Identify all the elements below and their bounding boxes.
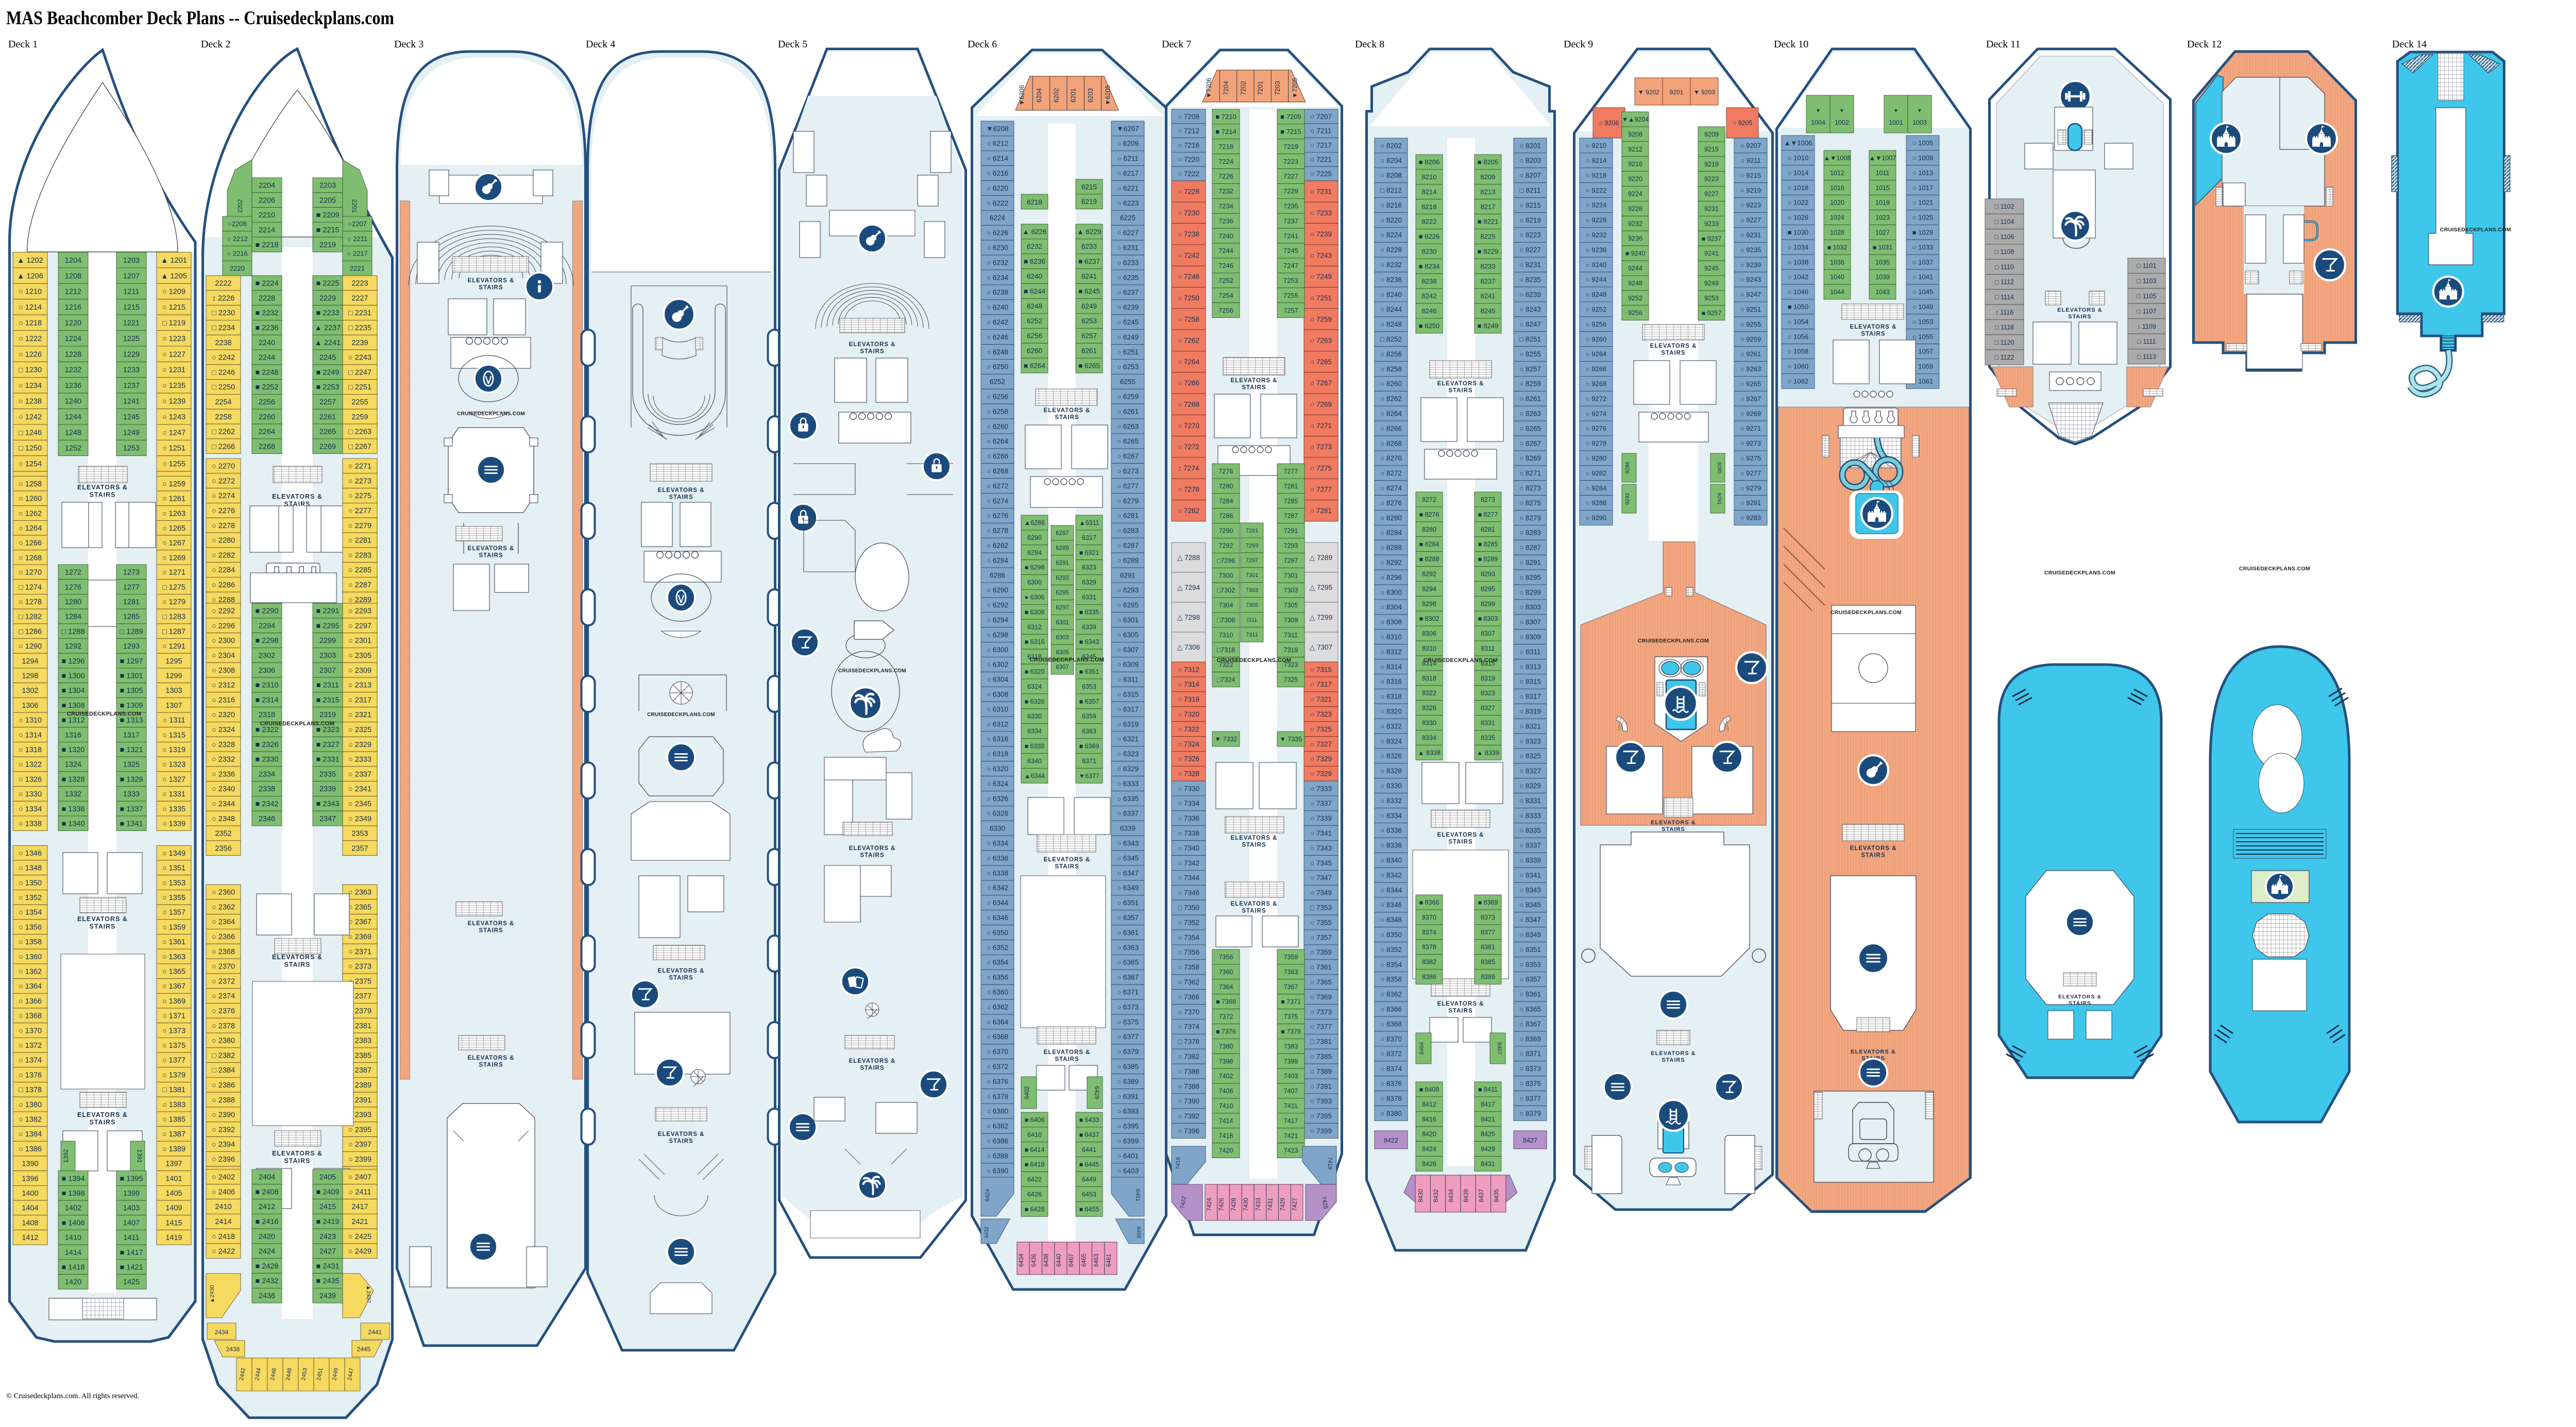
svg-text:■ 7368: ■ 7368 xyxy=(1216,998,1236,1006)
svg-text:○ 7265: ○ 7265 xyxy=(1310,358,1332,366)
svg-text:○ 2308: ○ 2308 xyxy=(212,667,235,675)
svg-text:▼▲9204: ▼▲9204 xyxy=(1622,116,1649,123)
svg-text:○ 6344: ○ 6344 xyxy=(987,899,1008,907)
svg-text:○ 1290: ○ 1290 xyxy=(19,642,42,651)
svg-text:1027: 1027 xyxy=(1875,229,1890,236)
svg-text:○ 8220: ○ 8220 xyxy=(1380,216,1402,224)
svg-text:1298: 1298 xyxy=(22,672,38,680)
svg-text:2223: 2223 xyxy=(351,280,368,288)
svg-text:ELEVATORS &: ELEVATORS & xyxy=(849,845,896,852)
svg-text:○ 9281: ○ 9281 xyxy=(1740,499,1761,507)
svg-text:○ 6349: ○ 6349 xyxy=(1117,884,1139,892)
svg-text:○ 1377: ○ 1377 xyxy=(162,1057,185,1065)
svg-text:7383: 7383 xyxy=(1284,1043,1298,1050)
svg-text:6432: 6432 xyxy=(984,1226,990,1238)
svg-text:○ 1346: ○ 1346 xyxy=(19,850,42,858)
svg-text:○ 2275: ○ 2275 xyxy=(348,492,371,500)
svg-text:7411: 7411 xyxy=(1284,1102,1298,1110)
svg-text:○ 9277: ○ 9277 xyxy=(1740,469,1761,477)
svg-text:■ 7214: ■ 7214 xyxy=(1215,128,1236,135)
svg-text:○ 9228: ○ 9228 xyxy=(1586,216,1606,224)
svg-text:ELEVATORS &: ELEVATORS & xyxy=(77,1111,128,1118)
svg-text:○ 2332: ○ 2332 xyxy=(212,756,235,764)
svg-text:○ 1010: ○ 1010 xyxy=(1788,154,1808,162)
svg-text:○ 8272: ○ 8272 xyxy=(1380,469,1402,477)
svg-text:○ 8368: ○ 8368 xyxy=(1380,1020,1402,1028)
svg-text:○ 1268: ○ 1268 xyxy=(19,554,42,562)
svg-text:6426: 6426 xyxy=(1027,1191,1042,1198)
svg-text:○ 8259: ○ 8259 xyxy=(1519,380,1541,388)
svg-text:7246: 7246 xyxy=(1218,262,1233,269)
svg-text:○ 1235: ○ 1235 xyxy=(162,382,185,390)
svg-text:6429: 6429 xyxy=(1093,1086,1099,1099)
svg-text:○ 2373: ○ 2373 xyxy=(348,963,371,971)
svg-text:8233: 8233 xyxy=(1481,262,1496,270)
svg-text:2427: 2427 xyxy=(319,1248,336,1256)
svg-text:○ 2348: ○ 2348 xyxy=(212,815,235,823)
svg-text:■ 6264: ■ 6264 xyxy=(1024,362,1045,369)
svg-text:7229: 7229 xyxy=(1283,188,1298,195)
svg-text:○ 9278: ○ 9278 xyxy=(1586,439,1606,447)
svg-text:○ 6232: ○ 6232 xyxy=(987,259,1008,266)
svg-text:○ 9247: ○ 9247 xyxy=(1740,291,1761,298)
svg-text:○ 1054: ○ 1054 xyxy=(1788,318,1808,326)
svg-text:7293: 7293 xyxy=(1284,542,1298,549)
svg-text:○ 9206: ○ 9206 xyxy=(1599,120,1619,127)
svg-text:9291: 9291 xyxy=(1716,492,1722,505)
svg-text:6305: 6305 xyxy=(1056,650,1069,656)
svg-text:8420: 8420 xyxy=(1422,1131,1436,1138)
svg-text:6253: 6253 xyxy=(1081,317,1097,325)
svg-text:8437: 8437 xyxy=(1479,1189,1485,1202)
svg-text:6330: 6330 xyxy=(1027,713,1042,720)
svg-text:STAIRS: STAIRS xyxy=(1055,864,1079,870)
svg-text:○ 1022: ○ 1022 xyxy=(1788,199,1808,207)
svg-text:○ 7228: ○ 7228 xyxy=(1178,188,1199,196)
svg-text:○ 2329: ○ 2329 xyxy=(348,741,371,749)
svg-text:△ 7306: △ 7306 xyxy=(1177,643,1200,651)
svg-text:○ 2271: ○ 2271 xyxy=(348,463,371,471)
svg-text:○ 7264: ○ 7264 xyxy=(1178,358,1199,366)
svg-text:○ 8379: ○ 8379 xyxy=(1519,1110,1541,1117)
svg-text:1403: 1403 xyxy=(123,1204,140,1213)
svg-text:□ 8212: □ 8212 xyxy=(1380,186,1402,194)
svg-text:7403: 7403 xyxy=(1284,1073,1298,1080)
svg-text:7319: 7319 xyxy=(1284,647,1298,654)
svg-text:2445: 2445 xyxy=(357,1346,371,1353)
svg-text:○ 6342: ○ 6342 xyxy=(987,884,1008,892)
svg-text:○ 1264: ○ 1264 xyxy=(19,524,42,533)
svg-text:9212: 9212 xyxy=(1628,146,1642,153)
svg-text:○ 8323: ○ 8323 xyxy=(1519,737,1541,745)
svg-text:○ 7251: ○ 7251 xyxy=(1310,294,1332,302)
svg-text:○ 6377: ○ 6377 xyxy=(1117,1033,1139,1041)
svg-text:○ 7318: ○ 7318 xyxy=(1178,695,1199,703)
svg-text:○ 2422: ○ 2422 xyxy=(212,1248,235,1256)
svg-text:○ 2407: ○ 2407 xyxy=(348,1174,371,1182)
svg-text:ELEVATORS &: ELEVATORS & xyxy=(1650,343,1697,349)
svg-text:Deck 2: Deck 2 xyxy=(201,39,230,50)
svg-text:○ 1209: ○ 1209 xyxy=(162,288,185,296)
svg-text:○ 1291: ○ 1291 xyxy=(162,642,185,651)
svg-text:○ 6321: ○ 6321 xyxy=(1117,735,1139,743)
svg-text:1004: 1004 xyxy=(1811,119,1825,126)
svg-text:○ 6335: ○ 6335 xyxy=(1117,795,1139,803)
svg-text:↕ 1116: ↕ 1116 xyxy=(1995,309,2014,316)
svg-text:○ 6333: ○ 6333 xyxy=(1117,780,1139,788)
svg-text:○ 6361: ○ 6361 xyxy=(1117,929,1139,937)
svg-text:ELEVATORS &: ELEVATORS & xyxy=(849,1058,896,1064)
svg-text:MAS Beachcomber Deck Plans --: MAS Beachcomber Deck Plans -- Cruisedeck… xyxy=(6,7,394,28)
svg-text:2228: 2228 xyxy=(259,294,275,302)
svg-text:1425: 1425 xyxy=(123,1278,140,1286)
svg-text:○ 9264: ○ 9264 xyxy=(1586,350,1606,358)
svg-text:○ 6260: ○ 6260 xyxy=(987,422,1008,430)
svg-text:9228: 9228 xyxy=(1628,205,1642,212)
svg-text:○ 7373: ○ 7373 xyxy=(1310,1008,1332,1016)
svg-text:○ 8266: ○ 8266 xyxy=(1380,424,1402,432)
svg-text:▲6344: ▲6344 xyxy=(1024,772,1045,779)
svg-text:○ 1222: ○ 1222 xyxy=(19,335,42,343)
svg-text:6291: 6291 xyxy=(1056,560,1069,566)
svg-text:○ 6220: ○ 6220 xyxy=(987,184,1008,192)
svg-text:9244: 9244 xyxy=(1628,265,1642,272)
svg-text:7311: 7311 xyxy=(1246,632,1258,638)
svg-text:STAIRS: STAIRS xyxy=(1448,1008,1472,1014)
svg-text:2265: 2265 xyxy=(319,428,336,436)
svg-text:○ 7233: ○ 7233 xyxy=(1310,209,1332,217)
svg-text:■ 1297: ■ 1297 xyxy=(120,657,143,666)
svg-text:○ 6318: ○ 6318 xyxy=(987,750,1008,758)
svg-text:6467: 6467 xyxy=(1069,1254,1075,1267)
svg-text:■ 6428: ■ 6428 xyxy=(1025,1205,1045,1213)
svg-text:8242: 8242 xyxy=(1422,292,1437,300)
svg-text:○ 7336: ○ 7336 xyxy=(1178,814,1199,822)
svg-text:1040: 1040 xyxy=(1830,274,1844,281)
svg-text:STAIRS: STAIRS xyxy=(1242,842,1266,848)
svg-text:○ 8257: ○ 8257 xyxy=(1519,365,1541,373)
svg-text:○ 2388: ○ 2388 xyxy=(212,1096,235,1105)
svg-text:1390: 1390 xyxy=(22,1160,38,1168)
svg-text:7364: 7364 xyxy=(1219,983,1233,991)
svg-text:○ 1265: ○ 1265 xyxy=(162,524,185,533)
svg-text:9231: 9231 xyxy=(1704,205,1719,212)
svg-text:○ 7365: ○ 7365 xyxy=(1310,978,1332,986)
svg-text:□7302: □7302 xyxy=(1217,587,1235,594)
svg-text:■ 2331: ■ 2331 xyxy=(316,756,339,764)
svg-text:ELEVATORS &: ELEVATORS & xyxy=(1851,1049,1895,1055)
svg-text:○ 2277: ○ 2277 xyxy=(348,507,371,515)
svg-text:1324: 1324 xyxy=(65,761,81,769)
svg-text:○ 8201: ○ 8201 xyxy=(1519,142,1541,149)
svg-text:■ 8302: ■ 8302 xyxy=(1419,615,1439,622)
svg-text:○ 8342: ○ 8342 xyxy=(1380,871,1402,879)
svg-text:ELEVATORS &: ELEVATORS & xyxy=(468,546,515,552)
svg-text:▼ 7332: ▼ 7332 xyxy=(1215,736,1238,743)
svg-text:○ 1366: ○ 1366 xyxy=(19,997,42,1006)
svg-text:○ 8357: ○ 8357 xyxy=(1519,976,1541,983)
svg-text:■ 6357: ■ 6357 xyxy=(1079,698,1099,705)
svg-text:STAIRS: STAIRS xyxy=(479,1062,503,1068)
svg-text:6324: 6324 xyxy=(1027,683,1042,690)
svg-text:■ 8288: ■ 8288 xyxy=(1419,556,1439,563)
svg-text:○ 9239: ○ 9239 xyxy=(1740,261,1761,268)
svg-text:○ 7267: ○ 7267 xyxy=(1310,379,1332,387)
svg-text:○ 8291: ○ 8291 xyxy=(1519,559,1541,567)
svg-text:8310: 8310 xyxy=(1422,645,1436,652)
svg-text:○ 6258: ○ 6258 xyxy=(987,407,1008,415)
svg-text:■ 7371: ■ 7371 xyxy=(1281,998,1301,1006)
svg-text:○ 7392: ○ 7392 xyxy=(1178,1112,1199,1120)
svg-text:7356: 7356 xyxy=(1219,954,1233,961)
svg-text:○ 6237: ○ 6237 xyxy=(1117,288,1139,296)
svg-text:○ 9232: ○ 9232 xyxy=(1586,231,1606,239)
svg-text:○ 9263: ○ 9263 xyxy=(1740,365,1761,373)
svg-text:■ 2253: ■ 2253 xyxy=(316,383,339,392)
svg-text:○ 1238: ○ 1238 xyxy=(19,398,42,406)
svg-text:○ 2287: ○ 2287 xyxy=(348,581,371,589)
svg-text:○ 8327: ○ 8327 xyxy=(1519,767,1541,775)
svg-text:7293: 7293 xyxy=(1246,542,1258,549)
svg-text:□ 1114: □ 1114 xyxy=(1995,294,2014,301)
svg-text:9219: 9219 xyxy=(1704,161,1719,168)
svg-text:○ 6346: ○ 6346 xyxy=(987,914,1008,922)
svg-text:6233: 6233 xyxy=(1081,243,1097,250)
svg-text:○ 8248: ○ 8248 xyxy=(1380,320,1402,328)
svg-text:○ 1326: ○ 1326 xyxy=(19,775,42,784)
svg-text:○ 6249: ○ 6249 xyxy=(1117,333,1139,341)
svg-text:○ 7388: ○ 7388 xyxy=(1178,1082,1199,1090)
svg-text:○ 6345: ○ 6345 xyxy=(1117,854,1139,862)
svg-text:9224: 9224 xyxy=(1628,190,1642,197)
svg-text:○ 8377: ○ 8377 xyxy=(1519,1095,1541,1102)
svg-text:○ 2386: ○ 2386 xyxy=(212,1081,235,1090)
svg-text:6252: 6252 xyxy=(1027,317,1042,325)
svg-text:1228: 1228 xyxy=(65,350,81,359)
svg-text:8280: 8280 xyxy=(1422,526,1436,533)
svg-text:2244: 2244 xyxy=(259,354,275,362)
svg-text:○ 9227: ○ 9227 xyxy=(1740,216,1761,224)
svg-text:○ 9282: ○ 9282 xyxy=(1586,469,1606,477)
svg-text:© Cruisedeckplans.com. All rig: © Cruisedeckplans.com. All rights reserv… xyxy=(6,1392,139,1400)
svg-text:○ 2349: ○ 2349 xyxy=(348,815,371,823)
svg-text:○ 1374: ○ 1374 xyxy=(19,1057,42,1065)
svg-text:○ 6264: ○ 6264 xyxy=(987,437,1008,445)
svg-text:○ 6317: ○ 6317 xyxy=(1117,705,1139,713)
svg-text:■ 6414: ■ 6414 xyxy=(1025,1146,1045,1153)
svg-text:8238: 8238 xyxy=(1422,277,1437,285)
svg-text:STAIRS: STAIRS xyxy=(2069,1000,2091,1007)
svg-text:○ 8370: ○ 8370 xyxy=(1380,1035,1402,1043)
svg-text:○ 6385: ○ 6385 xyxy=(1117,1063,1139,1071)
svg-text:STAIRS: STAIRS xyxy=(1662,826,1685,833)
svg-text:○ 8256: ○ 8256 xyxy=(1380,350,1402,358)
svg-text:○ 8202: ○ 8202 xyxy=(1380,142,1402,149)
svg-text:○ 2411: ○ 2411 xyxy=(349,1188,371,1196)
svg-text:○ 2279: ○ 2279 xyxy=(348,522,371,530)
svg-text:8386: 8386 xyxy=(1422,973,1436,980)
svg-text:7219: 7219 xyxy=(1283,143,1298,150)
svg-text:● 6306: ● 6306 xyxy=(1025,593,1045,601)
svg-text:□ 2382: □ 2382 xyxy=(212,1051,235,1060)
svg-text:○ 6301: ○ 6301 xyxy=(1117,616,1139,624)
svg-text:1249: 1249 xyxy=(123,429,140,437)
svg-text:○ 9280: ○ 9280 xyxy=(1586,454,1606,462)
svg-text:○ 8262: ○ 8262 xyxy=(1380,395,1402,403)
svg-text:■ 2290: ■ 2290 xyxy=(255,607,278,616)
svg-text:○ 1365: ○ 1365 xyxy=(162,967,185,976)
svg-text:■ 2298: ■ 2298 xyxy=(255,637,278,645)
svg-text:6317: 6317 xyxy=(1082,534,1096,541)
svg-text:○ 6227: ○ 6227 xyxy=(1117,229,1139,237)
svg-text:○ 2380: ○ 2380 xyxy=(212,1037,235,1045)
svg-text:○ 7391: ○ 7391 xyxy=(1310,1082,1332,1090)
svg-text:□ 1106: □ 1106 xyxy=(1995,233,2014,241)
svg-text:○ 7243: ○ 7243 xyxy=(1310,251,1332,259)
svg-text:7256: 7256 xyxy=(1218,307,1233,314)
svg-text:1241: 1241 xyxy=(123,398,140,406)
svg-text:■ 2236: ■ 2236 xyxy=(255,324,278,332)
svg-text:○ 7340: ○ 7340 xyxy=(1178,844,1199,852)
svg-text:△ 7295: △ 7295 xyxy=(1310,584,1332,591)
svg-text:2410: 2410 xyxy=(215,1203,231,1211)
svg-text:ELEVATORS &: ELEVATORS & xyxy=(2058,994,2102,1000)
svg-text:■ 8284: ■ 8284 xyxy=(1419,541,1439,548)
svg-text:7416: 7416 xyxy=(1175,1157,1181,1169)
svg-text:○ 7217: ○ 7217 xyxy=(1310,141,1332,149)
svg-text:▲ 1205: ▲ 1205 xyxy=(161,272,187,280)
svg-text:■ 6320: ■ 6320 xyxy=(1025,668,1045,675)
svg-text:○ 6250: ○ 6250 xyxy=(987,363,1008,371)
svg-text:■ 6437: ■ 6437 xyxy=(1079,1131,1099,1139)
svg-text:○ 8315: ○ 8315 xyxy=(1519,678,1541,686)
svg-text:□ 1288: □ 1288 xyxy=(61,627,84,636)
svg-text:8237: 8237 xyxy=(1481,277,1496,285)
svg-text:○ 8258: ○ 8258 xyxy=(1380,365,1402,373)
svg-text:9208: 9208 xyxy=(1628,131,1642,138)
svg-text:2303: 2303 xyxy=(319,652,336,660)
svg-text:2318: 2318 xyxy=(259,711,275,719)
svg-text:▼: ▼ xyxy=(1839,108,1844,114)
svg-text:○ 9214: ○ 9214 xyxy=(1586,157,1606,164)
svg-text:○ 8276: ○ 8276 xyxy=(1380,499,1402,507)
svg-text:6297: 6297 xyxy=(1056,605,1069,611)
svg-text:■ 1312: ■ 1312 xyxy=(61,717,84,725)
svg-text:↕ 1109: ↕ 1109 xyxy=(2137,323,2156,330)
svg-text:STAIRS: STAIRS xyxy=(2068,314,2092,320)
svg-text:6201: 6201 xyxy=(1070,88,1077,103)
svg-text:○ 2242: ○ 2242 xyxy=(212,354,235,362)
svg-text:8378: 8378 xyxy=(1422,944,1436,951)
svg-text:○ 9269: ○ 9269 xyxy=(1740,410,1761,417)
svg-text:○ 6364: ○ 6364 xyxy=(987,1018,1008,1026)
svg-text:○ 7322: ○ 7322 xyxy=(1178,725,1199,733)
svg-text:ELEVATORS &: ELEVATORS & xyxy=(658,968,705,974)
svg-text:8430: 8430 xyxy=(1418,1189,1425,1202)
svg-text:○ 2300: ○ 2300 xyxy=(212,637,235,645)
svg-text:○ 2289: ○ 2289 xyxy=(348,596,371,604)
svg-text:□ 1108: □ 1108 xyxy=(1995,248,2014,256)
svg-text:7398: 7398 xyxy=(1219,1058,1233,1065)
svg-text:ELEVATORS &: ELEVATORS & xyxy=(1231,901,1278,907)
svg-text:STAIRS: STAIRS xyxy=(284,1158,311,1165)
svg-text:7245: 7245 xyxy=(1283,247,1298,254)
svg-text:6219: 6219 xyxy=(1081,198,1097,206)
svg-text:1211: 1211 xyxy=(123,288,139,296)
svg-text:○ 7339: ○ 7339 xyxy=(1310,814,1332,822)
svg-text:■ 1032: ■ 1032 xyxy=(1827,244,1848,251)
svg-text:8407: 8407 xyxy=(1496,1042,1502,1055)
svg-text:○ 8310: ○ 8310 xyxy=(1380,633,1402,641)
svg-text:△ 7288: △ 7288 xyxy=(1177,554,1200,562)
svg-text:■ 2233: ■ 2233 xyxy=(316,309,339,317)
svg-text:○ 8227: ○ 8227 xyxy=(1519,246,1541,254)
svg-text:2441: 2441 xyxy=(368,1329,382,1336)
svg-text:○ 8340: ○ 8340 xyxy=(1380,857,1402,864)
svg-text:■ 8369: ■ 8369 xyxy=(1478,899,1498,906)
svg-text:ELEVATORS &: ELEVATORS & xyxy=(2057,307,2102,313)
svg-text:1215: 1215 xyxy=(123,303,140,312)
svg-text:2203: 2203 xyxy=(319,182,336,190)
svg-text:○ 7362: ○ 7362 xyxy=(1178,978,1199,986)
svg-text:○ 1356: ○ 1356 xyxy=(19,923,42,931)
svg-text:○ 2378: ○ 2378 xyxy=(212,1022,235,1030)
svg-text:2240: 2240 xyxy=(259,339,275,347)
svg-text:○ 1049: ○ 1049 xyxy=(1912,303,1933,311)
svg-text:ELEVATORS &: ELEVATORS & xyxy=(1231,835,1278,841)
svg-text:○ 6282: ○ 6282 xyxy=(987,542,1008,550)
svg-text:1272: 1272 xyxy=(65,569,81,577)
svg-text:○ 1371: ○ 1371 xyxy=(162,1012,185,1021)
svg-text:■ 2252: ■ 2252 xyxy=(255,383,278,392)
svg-text:▼6206: ▼6206 xyxy=(1019,85,1026,106)
svg-text:○ 1387: ○ 1387 xyxy=(162,1130,185,1139)
svg-text:■ 2327: ■ 2327 xyxy=(316,741,339,749)
svg-text:○ 1215: ○ 1215 xyxy=(162,303,185,312)
svg-text:○ 9252: ○ 9252 xyxy=(1586,305,1606,313)
svg-text:○ 2371: ○ 2371 xyxy=(348,948,371,956)
svg-text:8412: 8412 xyxy=(1422,1101,1436,1108)
svg-text:△ 7307: △ 7307 xyxy=(1310,643,1332,651)
svg-text:6438: 6438 xyxy=(1044,1254,1050,1267)
svg-text:■ 1329: ■ 1329 xyxy=(120,775,143,784)
svg-text:○ 6352: ○ 6352 xyxy=(987,944,1008,952)
svg-text:■ 1336: ■ 1336 xyxy=(61,805,84,813)
svg-text:○ 8378: ○ 8378 xyxy=(1380,1095,1402,1102)
svg-text:6204: 6204 xyxy=(1036,88,1043,103)
svg-text:1233: 1233 xyxy=(123,366,140,375)
svg-text:■ 1337: ■ 1337 xyxy=(120,805,143,813)
svg-text:6440: 6440 xyxy=(1056,1254,1062,1267)
svg-text:○ 7211: ○ 7211 xyxy=(1311,127,1332,135)
svg-text:2210: 2210 xyxy=(259,211,275,219)
svg-text:9227: 9227 xyxy=(1704,191,1719,198)
svg-text:○ 9251: ○ 9251 xyxy=(1740,305,1761,313)
svg-text:○ 1380: ○ 1380 xyxy=(19,1101,42,1109)
svg-text:6330: 6330 xyxy=(990,825,1005,833)
svg-text:ELEVATORS &: ELEVATORS & xyxy=(468,921,515,927)
svg-text:■ 2342: ■ 2342 xyxy=(255,800,278,808)
svg-text:Deck 3: Deck 3 xyxy=(394,39,423,50)
svg-text:○ 6307: ○ 6307 xyxy=(1117,646,1139,654)
svg-text:ELEVATORS &: ELEVATORS & xyxy=(1437,832,1484,838)
svg-text:7367: 7367 xyxy=(1284,983,1298,991)
svg-text:○ 9255: ○ 9255 xyxy=(1740,320,1761,328)
svg-text:7310: 7310 xyxy=(1219,632,1233,639)
svg-text:○ 9274: ○ 9274 xyxy=(1586,410,1606,417)
svg-text:7224: 7224 xyxy=(1218,158,1233,165)
svg-text:○ 1353: ○ 1353 xyxy=(162,879,185,887)
